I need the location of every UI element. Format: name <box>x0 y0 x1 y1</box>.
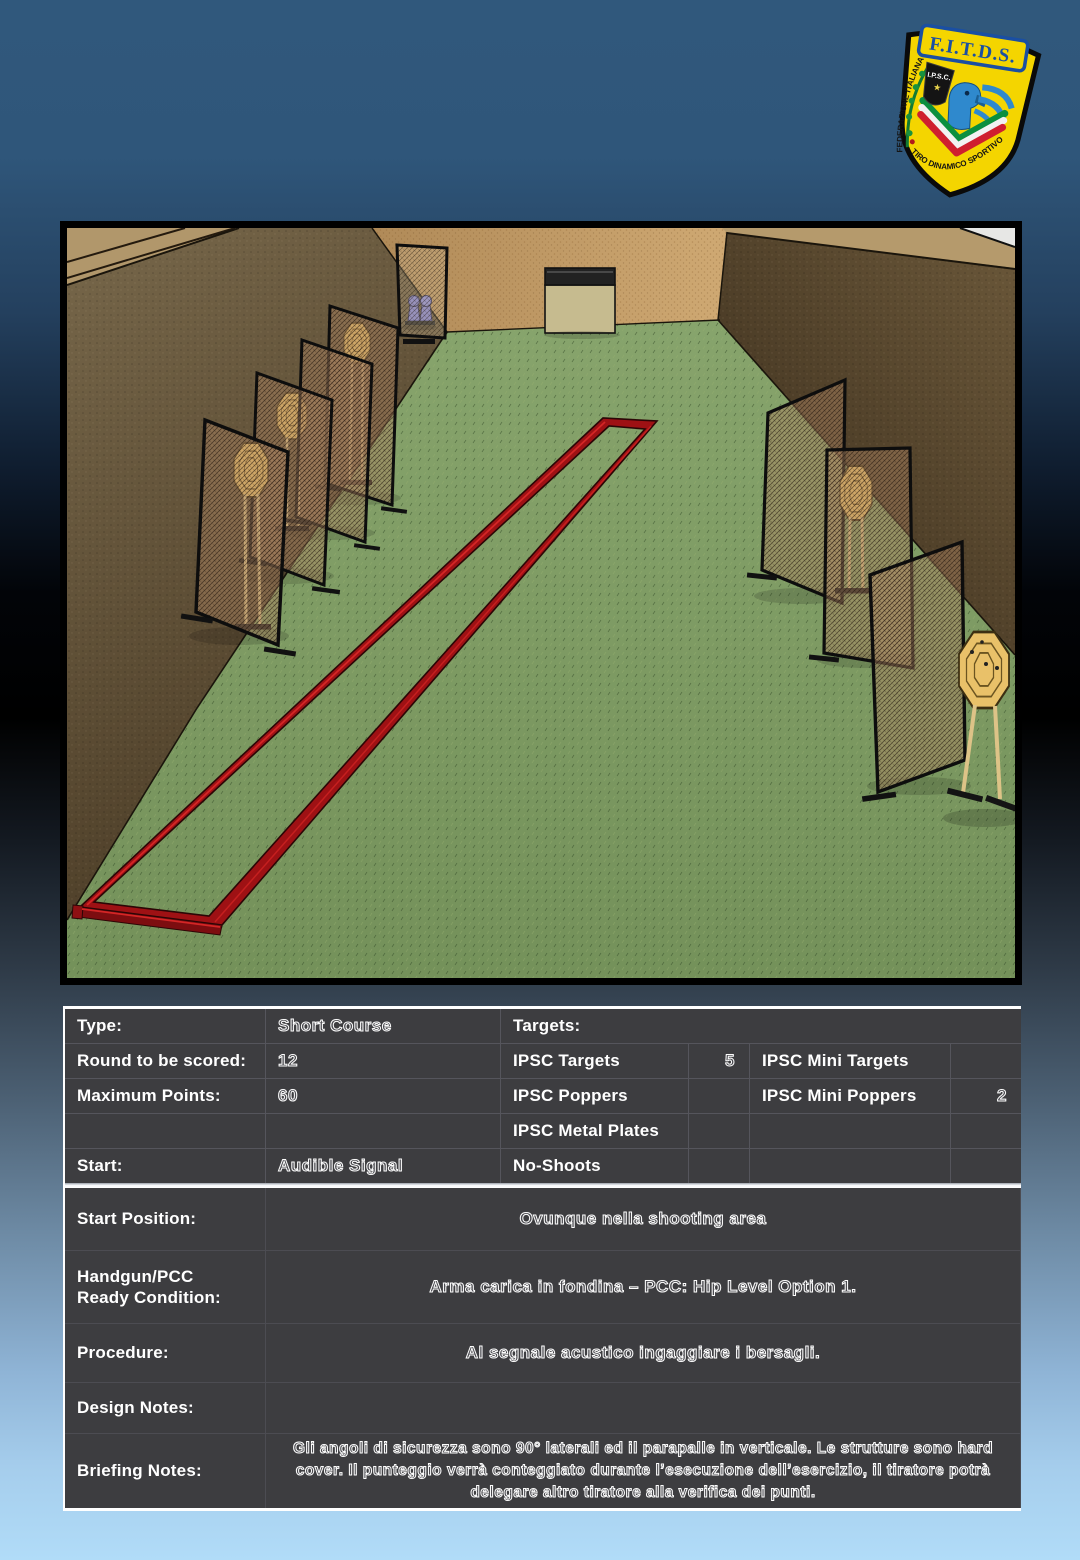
empty-cell <box>689 1114 749 1148</box>
stage-summary-table: Type: Short Course Targets: Round to be … <box>65 1009 1021 1183</box>
ipsc-targets-value: 5 <box>689 1044 749 1078</box>
procedure-label: Procedure: <box>65 1324 265 1382</box>
empty-cell <box>689 1149 749 1183</box>
plywood-box <box>544 268 620 339</box>
ready-condition-value: Arma carica in fondina – PCC: Hip Level … <box>266 1251 1020 1323</box>
stage-render-image <box>60 221 1022 985</box>
fitds-logo: F.I.T.D.S. I.P.S.C. ★ FEDERAZIONE ITALIA… <box>874 0 1054 213</box>
fitds-logo-svg: F.I.T.D.S. I.P.S.C. ★ FEDERAZIONE ITALIA… <box>874 0 1054 213</box>
type-label: Type: <box>65 1009 265 1043</box>
stage-briefing-table: Start Position: Ovunque nella shooting a… <box>65 1188 1021 1508</box>
rounds-value: 12 <box>266 1044 500 1078</box>
ready-condition-label-line2: Ready Condition: <box>77 1287 221 1308</box>
max-points-value: 60 <box>266 1079 500 1113</box>
ipsc-mini-poppers-label: IPSC Mini Poppers <box>750 1079 950 1113</box>
empty-cell <box>65 1114 265 1148</box>
mesh-wall-right-3 <box>862 542 971 802</box>
ipsc-mini-targets-label: IPSC Mini Targets <box>750 1044 950 1078</box>
briefing-notes-value: Gli angoli di sicurezza sono 90° lateral… <box>266 1434 1020 1508</box>
start-position-label: Start Position: <box>65 1188 265 1250</box>
briefing-notes-label: Briefing Notes: <box>65 1434 265 1508</box>
ipsc-poppers-value <box>689 1079 749 1113</box>
stage-info-tables: Type: Short Course Targets: Round to be … <box>63 1006 1021 1511</box>
targets-label: Targets: <box>501 1009 1021 1043</box>
empty-cell <box>951 1149 1021 1183</box>
design-notes-value <box>266 1383 1020 1433</box>
ipsc-targets-label: IPSC Targets <box>501 1044 688 1078</box>
start-position-value: Ovunque nella shooting area <box>266 1188 1020 1250</box>
empty-cell <box>750 1149 950 1183</box>
no-shoots-label: No-Shoots <box>501 1149 688 1183</box>
ipsc-mini-targets-value <box>951 1044 1021 1078</box>
max-points-label: Maximum Points: <box>65 1079 265 1113</box>
ipsc-metal-plates-label: IPSC Metal Plates <box>501 1114 688 1148</box>
design-notes-label: Design Notes: <box>65 1383 265 1433</box>
ready-condition-label: Handgun/PCC Ready Condition: <box>65 1251 265 1323</box>
stage-scene <box>67 228 1015 978</box>
mesh-wall-rear <box>397 245 447 344</box>
ready-condition-label-line1: Handgun/PCC <box>77 1266 193 1287</box>
star-icon: ★ <box>932 82 942 93</box>
empty-cell <box>951 1114 1021 1148</box>
rounds-label: Round to be scored: <box>65 1044 265 1078</box>
empty-cell <box>750 1114 950 1148</box>
type-value: Short Course <box>266 1009 500 1043</box>
empty-cell <box>266 1114 500 1148</box>
procedure-value: Al segnale acustico ingaggiare i bersagl… <box>266 1324 1020 1382</box>
start-value: Audible Signal <box>266 1149 500 1183</box>
ipsc-mini-poppers-value: 2 <box>951 1079 1021 1113</box>
ipsc-poppers-label: IPSC Poppers <box>501 1079 688 1113</box>
start-label: Start: <box>65 1149 265 1183</box>
